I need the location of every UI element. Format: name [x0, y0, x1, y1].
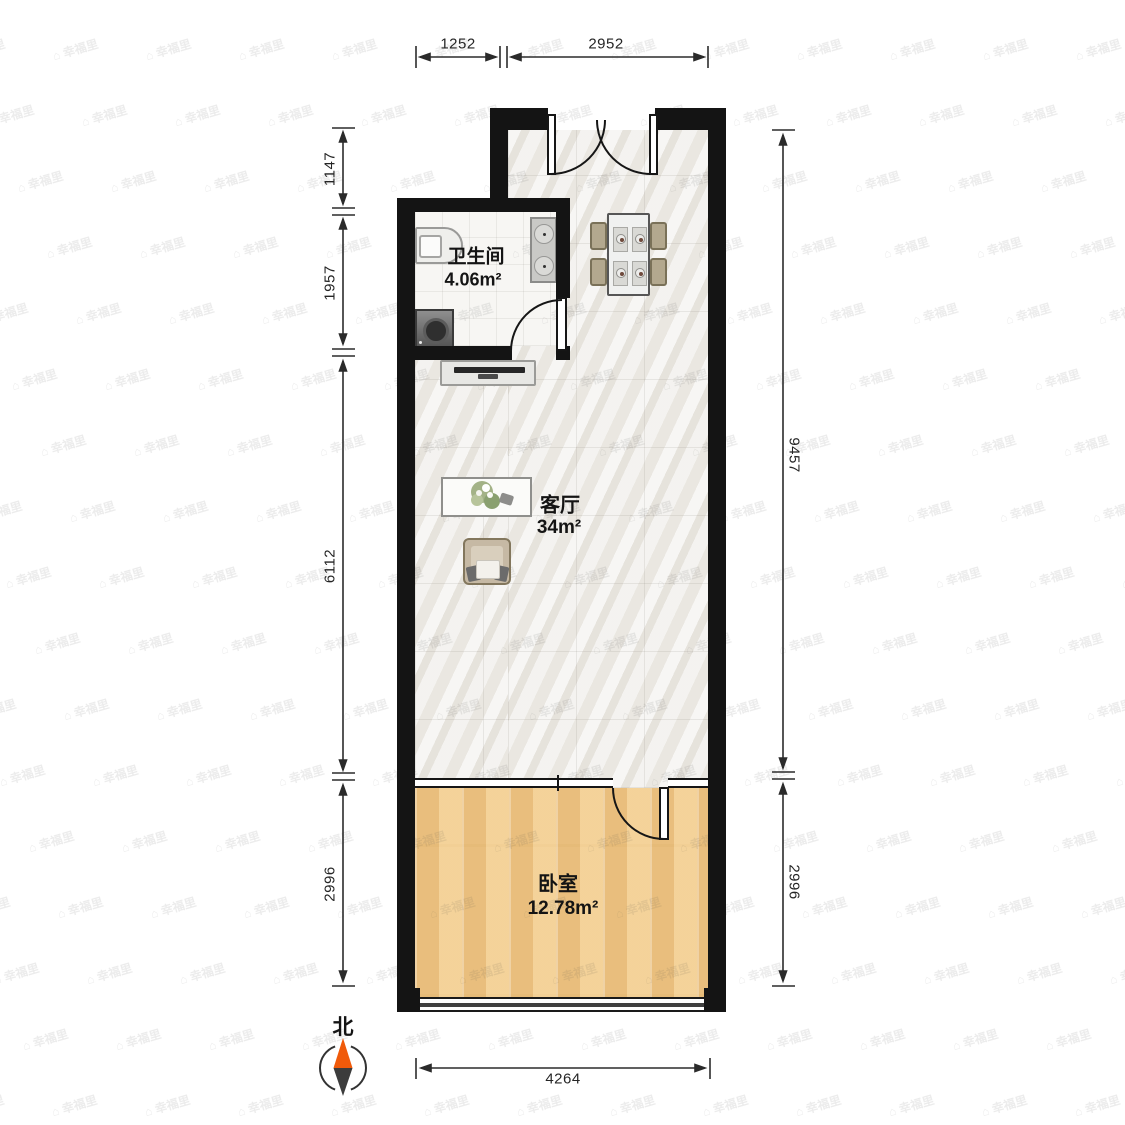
toilet-tank [419, 235, 442, 258]
wall-entry-left [490, 108, 508, 212]
watermark: ⌂ 幸福里 [876, 431, 925, 460]
watermark: ⌂ 幸福里 [0, 695, 18, 724]
watermark: ⌂ 幸福里 [143, 1091, 192, 1120]
entry-door-right-leaf [649, 114, 658, 175]
watermark: ⌂ 幸福里 [1033, 365, 1082, 394]
wall-left [397, 198, 415, 1012]
watermark: ⌂ 幸福里 [1044, 1025, 1093, 1054]
watermark: ⌂ 幸福里 [992, 695, 1041, 724]
placemat-4 [632, 261, 647, 286]
placemat-3 [613, 261, 628, 286]
tv-console [440, 360, 536, 386]
watermark: ⌂ 幸福里 [1073, 1091, 1122, 1120]
plate-2-food [639, 238, 643, 242]
partition-living-bedroom-left [415, 778, 613, 788]
watermark: ⌂ 幸福里 [184, 761, 233, 790]
bedroom-window [420, 997, 704, 1012]
watermark: ⌂ 幸福里 [393, 1025, 442, 1054]
watermark: ⌂ 幸福里 [899, 695, 948, 724]
watermark: ⌂ 幸福里 [80, 101, 129, 130]
watermark: ⌂ 幸福里 [824, 101, 873, 130]
watermark: ⌂ 幸福里 [841, 563, 890, 592]
armchair-blanket [476, 560, 500, 579]
watermark: ⌂ 幸福里 [114, 1025, 163, 1054]
watermark: ⌂ 幸福里 [97, 563, 146, 592]
bedroom-name-label: 卧室 [538, 868, 578, 897]
wall-bathroom-top [397, 198, 570, 212]
watermark: ⌂ 幸福里 [1027, 563, 1076, 592]
watermark: ⌂ 幸福里 [330, 35, 379, 64]
watermark: ⌂ 幸福里 [818, 299, 867, 328]
watermark: ⌂ 幸福里 [1068, 233, 1117, 262]
watermark: ⌂ 幸福里 [794, 1091, 843, 1120]
watermark: ⌂ 幸福里 [760, 167, 809, 196]
wall-bottom-right-corner [704, 988, 726, 1012]
wall-bathroom-right [556, 212, 570, 298]
placemat-2 [632, 227, 647, 252]
compass-icon [320, 1038, 366, 1096]
watermark: ⌂ 幸福里 [1039, 167, 1088, 196]
watermark: ⌂ 幸福里 [1010, 101, 1059, 130]
watermark: ⌂ 幸福里 [1079, 893, 1125, 922]
watermark: ⌂ 幸福里 [388, 167, 437, 196]
watermark: ⌂ 幸福里 [940, 365, 989, 394]
watermark: ⌂ 幸福里 [701, 1091, 750, 1120]
watermark: ⌂ 幸福里 [27, 827, 76, 856]
watermark: ⌂ 幸福里 [765, 1025, 814, 1054]
washer-knob [419, 341, 422, 344]
watermark: ⌂ 幸福里 [289, 365, 338, 394]
watermark: ⌂ 幸福里 [167, 299, 216, 328]
watermark: ⌂ 幸福里 [515, 1091, 564, 1120]
dim-top-1: 1252 [440, 36, 475, 53]
sink-bottom-drain [543, 265, 546, 268]
watermark: ⌂ 幸福里 [1091, 497, 1125, 526]
tv-screen [454, 367, 525, 373]
watermark: ⌂ 幸福里 [1056, 629, 1105, 658]
watermark: ⌂ 幸福里 [0, 1091, 6, 1120]
watermark: ⌂ 幸福里 [85, 959, 134, 988]
watermark: ⌂ 幸福里 [161, 497, 210, 526]
watermark: ⌂ 幸福里 [951, 1025, 1000, 1054]
watermark: ⌂ 幸福里 [242, 893, 291, 922]
watermark: ⌂ 幸福里 [795, 35, 844, 64]
watermark: ⌂ 幸福里 [870, 629, 919, 658]
wall-right [708, 108, 726, 1012]
watermark: ⌂ 幸福里 [190, 563, 239, 592]
dim-top-2: 2952 [588, 36, 623, 53]
watermark: ⌂ 幸福里 [39, 431, 88, 460]
watermark: ⌂ 幸福里 [981, 35, 1030, 64]
watermark: ⌂ 幸福里 [922, 959, 971, 988]
watermark: ⌂ 幸福里 [329, 1091, 378, 1120]
watermark: ⌂ 幸福里 [68, 497, 117, 526]
watermark: ⌂ 幸福里 [1108, 959, 1125, 988]
watermark: ⌂ 幸福里 [736, 959, 785, 988]
watermark: ⌂ 幸福里 [341, 695, 390, 724]
dining-table [607, 213, 650, 296]
plate-3-food [620, 272, 624, 276]
watermark: ⌂ 幸福里 [318, 431, 367, 460]
watermark: ⌂ 幸福里 [835, 761, 884, 790]
watermark: ⌂ 幸福里 [306, 827, 355, 856]
watermark: ⌂ 幸福里 [516, 35, 565, 64]
watermark: ⌂ 幸福里 [1050, 827, 1099, 856]
dining-chair-bottom-right [650, 258, 667, 286]
watermark: ⌂ 幸福里 [202, 167, 251, 196]
dim-right-2: 2996 [786, 864, 803, 899]
dim-left-3: 6112 [322, 549, 339, 583]
watermark: ⌂ 幸福里 [928, 761, 977, 790]
watermark: ⌂ 幸福里 [0, 233, 1, 262]
dining-chair-bottom-left [590, 258, 607, 286]
watermark: ⌂ 幸福里 [422, 1091, 471, 1120]
watermark: ⌂ 幸福里 [725, 299, 774, 328]
watermark: ⌂ 幸福里 [888, 35, 937, 64]
watermark: ⌂ 幸福里 [0, 893, 12, 922]
watermark: ⌂ 幸福里 [806, 695, 855, 724]
watermark: ⌂ 幸福里 [672, 1025, 721, 1054]
watermark: ⌂ 幸福里 [829, 959, 878, 988]
watermark: ⌂ 幸福里 [986, 893, 1035, 922]
watermark: ⌂ 幸福里 [219, 629, 268, 658]
watermark: ⌂ 幸福里 [980, 1091, 1029, 1120]
watermark: ⌂ 幸福里 [731, 101, 780, 130]
watermark: ⌂ 幸福里 [21, 1025, 70, 1054]
coffee-table [441, 477, 532, 517]
window-glass-line [420, 1003, 704, 1007]
watermark: ⌂ 幸福里 [486, 1025, 535, 1054]
dining-chair-top-right [650, 222, 667, 250]
dim-left-1: 1147 [322, 152, 339, 186]
watermark: ⌂ 幸福里 [579, 1025, 628, 1054]
watermark: ⌂ 幸福里 [911, 299, 960, 328]
watermark: ⌂ 幸福里 [74, 299, 123, 328]
dim-bottom-1: 4264 [545, 1071, 580, 1088]
watermark: ⌂ 幸福里 [120, 827, 169, 856]
watermark: ⌂ 幸福里 [847, 365, 896, 394]
plate-4-food [639, 272, 643, 276]
watermark: ⌂ 幸福里 [254, 497, 303, 526]
dining-chair-top-left [590, 222, 607, 250]
watermark: ⌂ 幸福里 [864, 827, 913, 856]
watermark: ⌂ 幸福里 [748, 563, 797, 592]
watermark: ⌂ 幸福里 [812, 497, 861, 526]
watermark: ⌂ 幸福里 [800, 893, 849, 922]
watermark: ⌂ 幸福里 [742, 761, 791, 790]
watermark: ⌂ 幸福里 [1074, 35, 1123, 64]
bedroom-door-leaf [659, 787, 669, 840]
watermark: ⌂ 幸福里 [248, 695, 297, 724]
watermark: ⌂ 幸福里 [359, 101, 408, 130]
watermark: ⌂ 幸福里 [946, 167, 995, 196]
watermark: ⌂ 幸福里 [934, 563, 983, 592]
bathroom-door-leaf [556, 297, 567, 351]
watermark: ⌂ 幸福里 [0, 761, 47, 790]
watermark: ⌂ 幸福里 [144, 35, 193, 64]
watermark: ⌂ 幸福里 [103, 365, 152, 394]
watermark: ⌂ 幸福里 [62, 695, 111, 724]
watermark: ⌂ 幸福里 [231, 233, 280, 262]
watermark: ⌂ 幸福里 [893, 893, 942, 922]
watermark: ⌂ 幸福里 [1120, 563, 1125, 592]
watermark: ⌂ 幸福里 [56, 893, 105, 922]
watermark: ⌂ 幸福里 [963, 629, 1012, 658]
watermark: ⌂ 幸福里 [917, 101, 966, 130]
bedroom-area-label: 12.78m² [528, 898, 599, 920]
watermark: ⌂ 幸福里 [16, 167, 65, 196]
watermark: ⌂ 幸福里 [998, 497, 1047, 526]
watermark: ⌂ 幸福里 [51, 35, 100, 64]
watermark: ⌂ 幸福里 [10, 365, 59, 394]
washer-drum [423, 318, 449, 344]
watermark: ⌂ 幸福里 [225, 431, 274, 460]
watermark: ⌂ 幸福里 [91, 761, 140, 790]
watermark: ⌂ 幸福里 [271, 959, 320, 988]
armchair [463, 538, 511, 585]
watermark: ⌂ 幸福里 [277, 761, 326, 790]
dim-right-1: 9457 [786, 437, 803, 472]
watermark: ⌂ 幸福里 [1004, 299, 1053, 328]
compass-north-label: 北 [333, 1011, 354, 1041]
watermark: ⌂ 幸福里 [347, 497, 396, 526]
watermark: ⌂ 幸福里 [324, 233, 373, 262]
watermark: ⌂ 幸福里 [887, 1091, 936, 1120]
watermark: ⌂ 幸福里 [1114, 761, 1125, 790]
watermark: ⌂ 幸福里 [1015, 959, 1064, 988]
watermark: ⌂ 幸福里 [33, 629, 82, 658]
watermark: ⌂ 幸福里 [196, 365, 245, 394]
watermark: ⌂ 幸福里 [138, 233, 187, 262]
watermark: ⌂ 幸福里 [335, 893, 384, 922]
partition-junction-tick [557, 775, 559, 791]
living-name-label: 客厅 [540, 489, 580, 518]
watermark: ⌂ 幸福里 [905, 497, 954, 526]
watermark: ⌂ 幸福里 [207, 1025, 256, 1054]
watermark: ⌂ 幸福里 [858, 1025, 907, 1054]
watermark: ⌂ 幸福里 [0, 35, 7, 64]
floor-plan-canvas: ⌂ 幸福里⌂ 幸福里⌂ 幸福里⌂ 幸福里⌂ 幸福里⌂ 幸福里⌂ 幸福里⌂ 幸福里… [0, 0, 1125, 1125]
watermark: ⌂ 幸福里 [608, 1091, 657, 1120]
watermark: ⌂ 幸福里 [266, 101, 315, 130]
partition-living-bedroom-right [668, 778, 708, 788]
watermark: ⌂ 幸福里 [0, 299, 30, 328]
sink-top-drain [543, 233, 546, 236]
watermark: ⌂ 幸福里 [132, 431, 181, 460]
watermark: ⌂ 幸福里 [0, 497, 24, 526]
wall-bathroom-bottom [415, 346, 512, 360]
watermark: ⌂ 幸福里 [155, 695, 204, 724]
watermark: ⌂ 幸福里 [45, 233, 94, 262]
compass-needle-south [334, 1068, 353, 1096]
living-area-label: 34m² [537, 517, 581, 539]
watermark: ⌂ 幸福里 [882, 233, 931, 262]
watermark: ⌂ 幸福里 [213, 827, 262, 856]
watermark: ⌂ 幸福里 [1085, 695, 1125, 724]
watermark: ⌂ 幸福里 [149, 893, 198, 922]
watermark: ⌂ 幸福里 [312, 629, 361, 658]
watermark: ⌂ 幸福里 [1097, 299, 1125, 328]
bathroom-area-label: 4.06m² [444, 270, 501, 291]
placemat-1 [613, 227, 628, 252]
watermark: ⌂ 幸福里 [777, 629, 826, 658]
watermark: ⌂ 幸福里 [236, 1091, 285, 1120]
watermark: ⌂ 幸福里 [237, 35, 286, 64]
watermark: ⌂ 幸福里 [0, 959, 41, 988]
watermark: ⌂ 幸福里 [50, 1091, 99, 1120]
watermark: ⌂ 幸福里 [126, 629, 175, 658]
compass-needle-north [334, 1038, 353, 1068]
dim-left-4: 2996 [322, 866, 339, 901]
watermark: ⌂ 幸福里 [969, 431, 1018, 460]
watermark: ⌂ 幸福里 [178, 959, 227, 988]
watermark: ⌂ 幸福里 [0, 101, 36, 130]
watermark: ⌂ 幸福里 [353, 299, 402, 328]
watermark: ⌂ 幸福里 [853, 167, 902, 196]
watermark: ⌂ 幸福里 [109, 167, 158, 196]
bathroom-name-label: 卫生间 [447, 242, 504, 269]
wall-bottom-left-corner [397, 988, 420, 1012]
plate-1-food [620, 238, 624, 242]
watermark: ⌂ 幸福里 [771, 827, 820, 856]
dim-left-2: 1957 [322, 265, 339, 300]
watermark: ⌂ 幸福里 [4, 563, 53, 592]
watermark: ⌂ 幸福里 [1062, 431, 1111, 460]
watermark: ⌂ 幸福里 [1021, 761, 1070, 790]
tv-stand [478, 374, 498, 379]
watermark: ⌂ 幸福里 [260, 299, 309, 328]
watermark: ⌂ 幸福里 [789, 233, 838, 262]
watermark: ⌂ 幸福里 [975, 233, 1024, 262]
entry-door-left-leaf [547, 114, 556, 175]
watermark: ⌂ 幸福里 [173, 101, 222, 130]
watermark: ⌂ 幸福里 [1103, 101, 1125, 130]
watermark: ⌂ 幸福里 [754, 365, 803, 394]
bathroom-vanity [530, 217, 557, 283]
watermark: ⌂ 幸福里 [702, 35, 751, 64]
watermark: ⌂ 幸福里 [957, 827, 1006, 856]
